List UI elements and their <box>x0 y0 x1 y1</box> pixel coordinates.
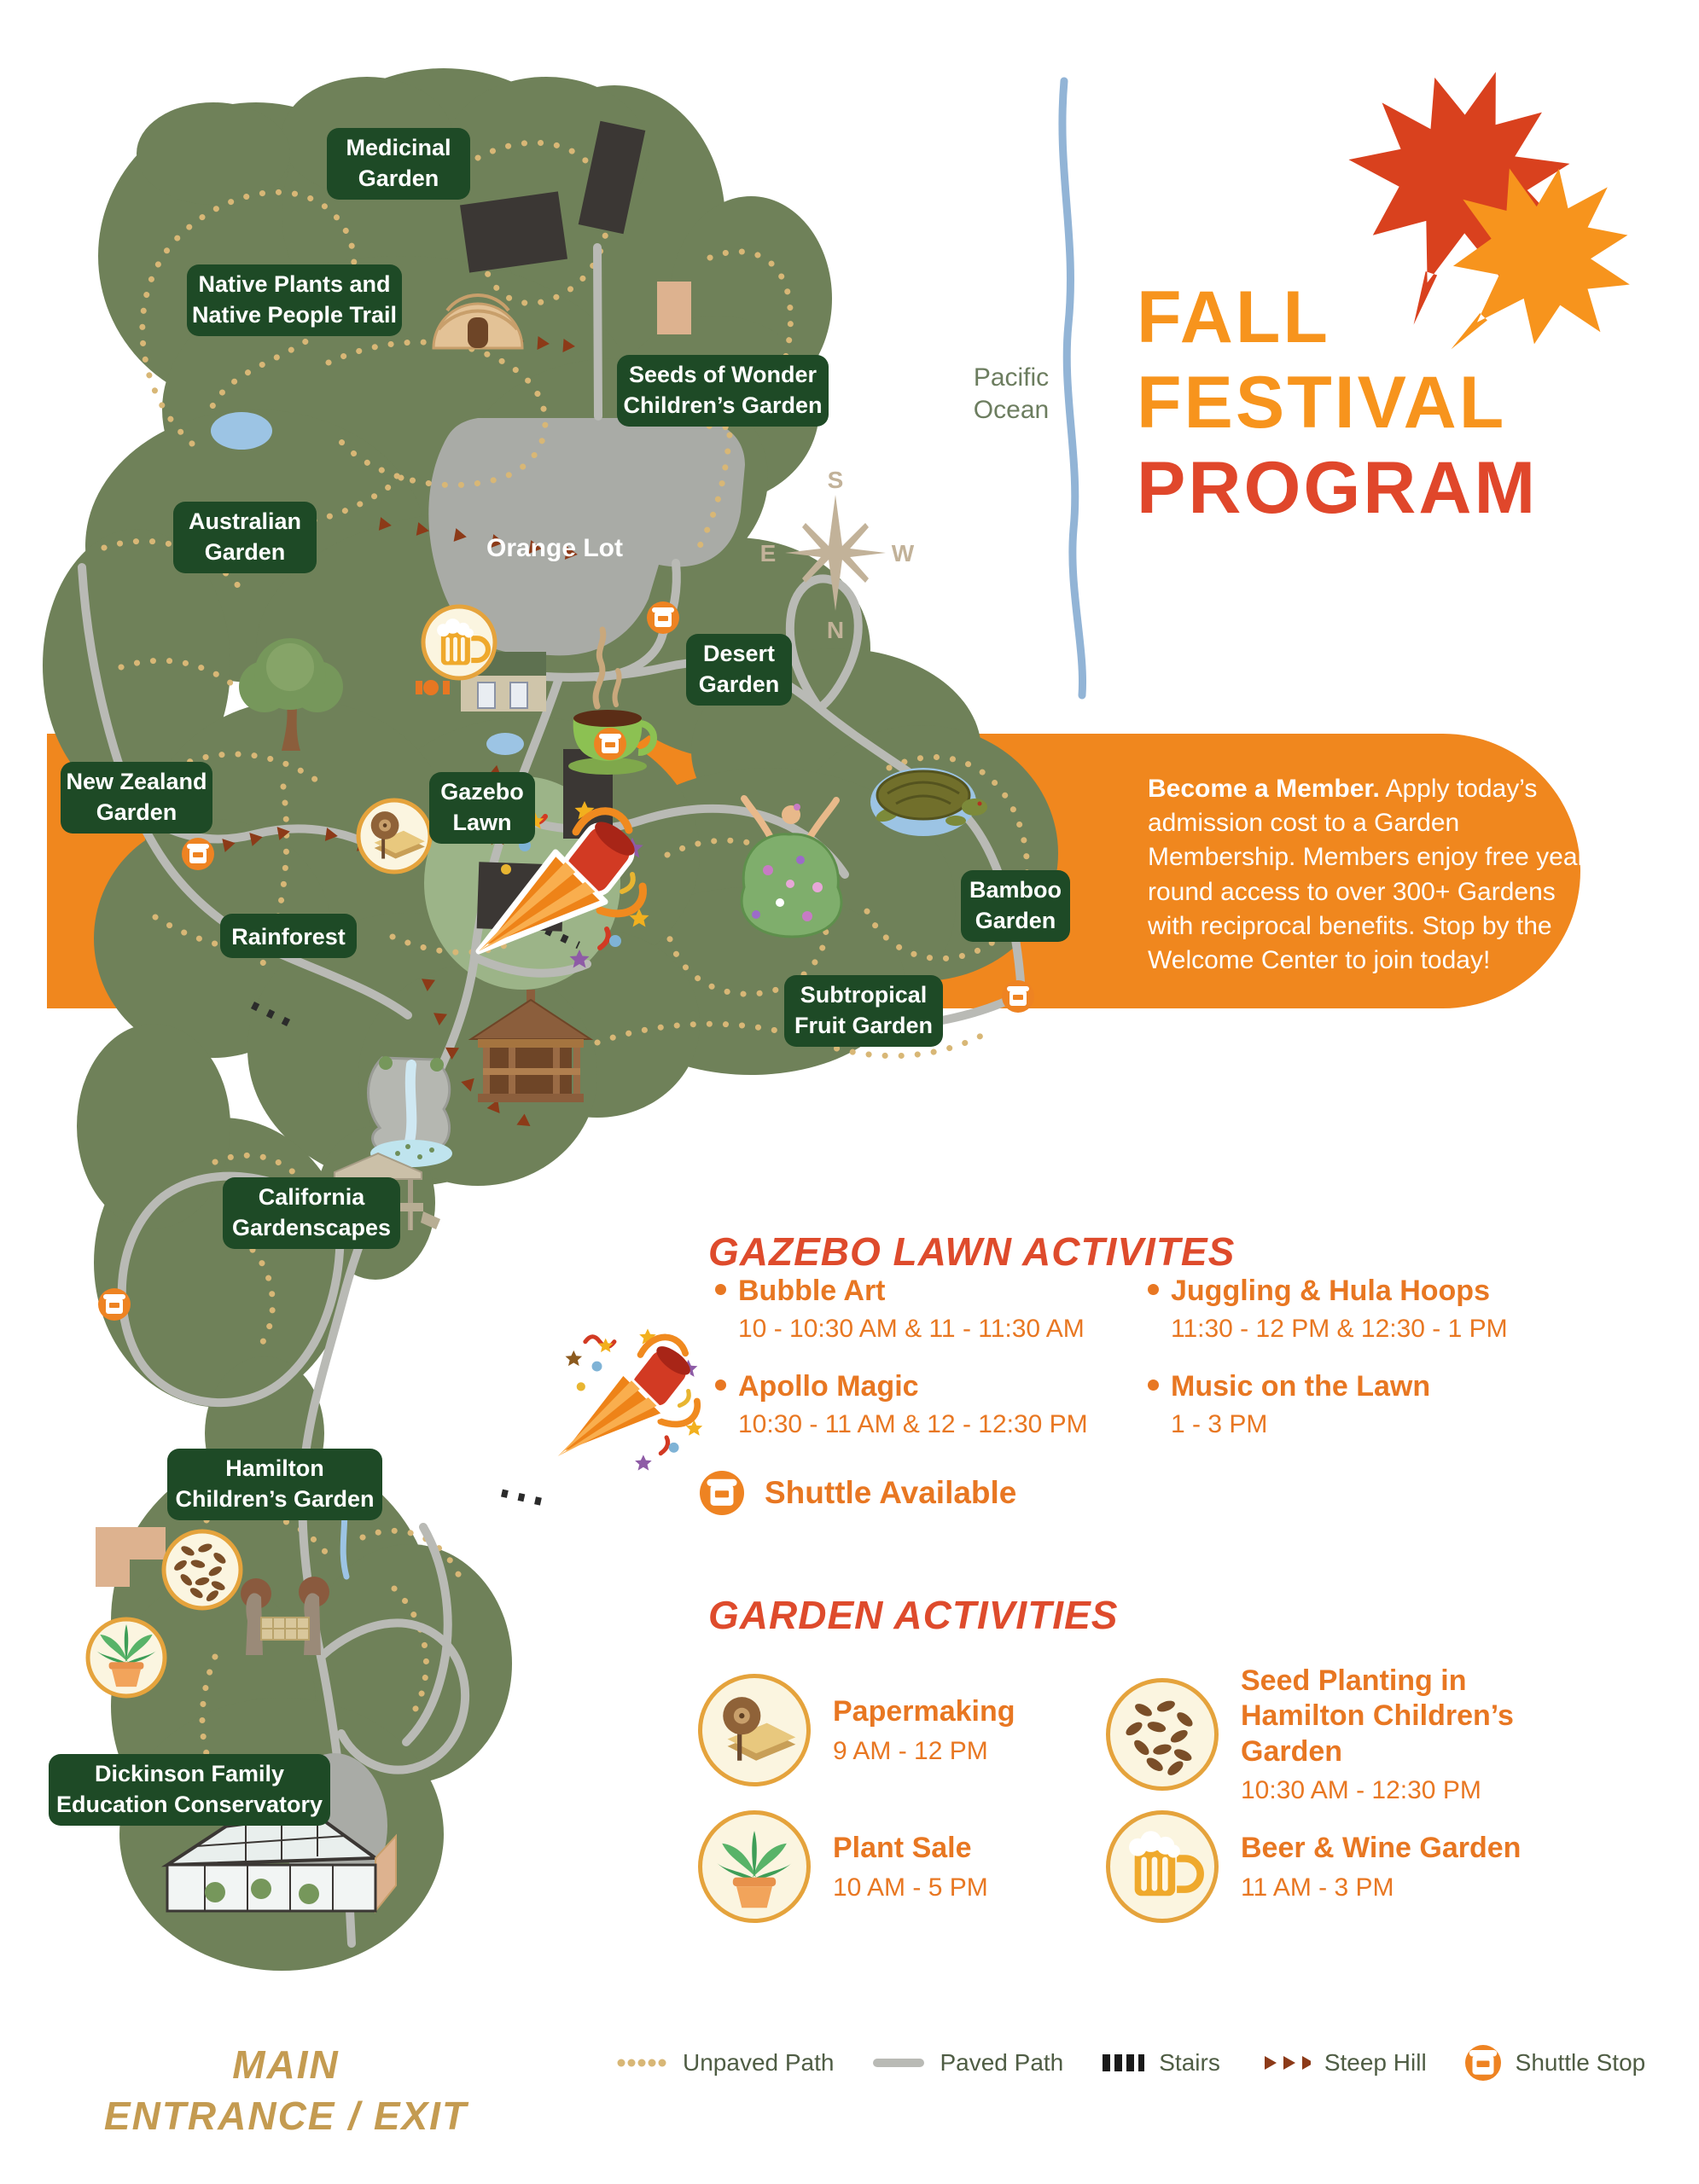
treehouse-illustration <box>335 1153 440 1230</box>
svg-text:Native Plants and: Native Plants and <box>198 271 390 297</box>
steep-hill-markers <box>222 334 579 1132</box>
legend-steep-hill: Steep Hill <box>1258 2049 1427 2077</box>
svg-text:Medicinal: Medicinal <box>346 135 451 160</box>
member-banner-text: Become a Member. Apply today’s admission… <box>1148 772 1591 978</box>
legend-shuttle-stop: Shuttle Stop <box>1464 2044 1646 2082</box>
map-label-hamilton-childrens-garden: HamiltonChildren’s Garden <box>167 1449 382 1520</box>
map-label-medicinal-garden: MedicinalGarden <box>327 128 470 200</box>
activity-seed-planting: Seed Planting in Hamilton Children’s Gar… <box>1106 1664 1584 1805</box>
svg-text:Fruit Garden: Fruit Garden <box>794 1013 933 1038</box>
garden-activities-heading: GARDEN ACTIVITIES <box>708 1592 1118 1638</box>
compass-south: S <box>828 467 844 493</box>
svg-text:Seeds of Wonder: Seeds of Wonder <box>629 362 817 387</box>
shuttle-available-note: Shuttle Available <box>700 1471 1016 1515</box>
beer-mug-icon <box>1106 1810 1219 1923</box>
stairs-icon <box>1101 2053 1145 2072</box>
legend-unpaved-path: Unpaved Path <box>616 2049 834 2077</box>
shuttle-stop-icon <box>1464 2044 1502 2082</box>
potted-plant-icon <box>96 1624 156 1687</box>
svg-text:Pacific: Pacific <box>974 363 1049 392</box>
activity-plant-sale: Plant Sale 10 AM - 5 PM <box>698 1810 1176 1923</box>
steep-hill-icon <box>1258 2055 1311 2071</box>
orange-lot-area <box>428 418 745 655</box>
legend-stairs: Stairs <box>1101 2049 1220 2077</box>
compass-west: W <box>892 540 915 566</box>
pacific-ocean-line <box>1062 81 1083 695</box>
svg-text:Gardenscapes: Gardenscapes <box>232 1215 391 1240</box>
pacific-ocean-label: Pacific Ocean <box>974 363 1049 424</box>
compass-east: E <box>760 540 777 566</box>
bullet-icon <box>715 1380 726 1391</box>
svg-text:Australian: Australian <box>189 508 301 534</box>
activity-juggling-hula-hoops: Juggling & Hula Hoops 11:30 - 12 PM & 12… <box>1148 1275 1549 1344</box>
svg-text:Garden: Garden <box>699 671 780 697</box>
hut-illustration <box>433 295 522 348</box>
visitor-center-illustration <box>416 652 546 712</box>
potted-plant-icon <box>698 1810 811 1923</box>
title-fall: FALL <box>1137 275 1538 360</box>
activity-beer-wine-garden: Beer & Wine Garden 11 AM - 3 PM <box>1106 1810 1584 1923</box>
member-banner-body: Apply today’s admission cost to a Garden… <box>1148 775 1586 974</box>
svg-text:California: California <box>259 1184 366 1210</box>
compass-rose: S E W N <box>760 467 915 643</box>
map-label-seeds-of-wonder: Seeds of WonderChildren’s Garden <box>617 355 829 427</box>
bullet-icon <box>715 1284 726 1295</box>
svg-text:Education Conservatory: Education Conservatory <box>56 1792 323 1817</box>
map-label-desert-garden: DesertGarden <box>686 634 792 706</box>
seeds-icon <box>1106 1678 1219 1791</box>
svg-text:Dickinson Family: Dickinson Family <box>95 1761 284 1786</box>
map-label-native-plants-trail: Native Plants andNative People Trail <box>187 264 402 336</box>
svg-text:Hamilton: Hamilton <box>225 1455 324 1481</box>
title-program: PROGRAM <box>1137 445 1538 531</box>
activity-papermaking: Papermaking 9 AM - 12 PM <box>698 1674 1176 1786</box>
stairs-markers <box>253 923 579 1503</box>
svg-text:Native People Trail: Native People Trail <box>192 302 397 328</box>
main-entrance-label: MAIN ENTRANCE / EXIT <box>85 2039 486 2141</box>
party-popper-icon <box>558 1328 703 1470</box>
shuttle-stop-icon <box>700 1471 744 1515</box>
activity-music-on-the-lawn: Music on the Lawn 1 - 3 PM <box>1148 1370 1549 1439</box>
svg-text:Desert: Desert <box>703 641 775 666</box>
svg-text:Garden: Garden <box>205 539 286 565</box>
bullet-icon <box>1148 1284 1159 1295</box>
fall-festival-program-poster: { "title": {"lines": ["FALL", "FESTIVAL"… <box>0 0 1699 2184</box>
beer-mug-icon <box>437 619 488 665</box>
svg-text:Children’s Garden: Children’s Garden <box>623 392 822 418</box>
map-label-australian-garden: AustralianGarden <box>173 502 317 573</box>
compass-north: N <box>827 617 844 643</box>
member-banner-lead: Become a Member. <box>1148 775 1380 803</box>
seeds-icon <box>172 1542 228 1604</box>
legend-paved-path: Paved Path <box>871 2049 1063 2077</box>
paper-roll-icon <box>698 1674 811 1786</box>
waterfall-illustration <box>369 1056 453 1167</box>
orange-lot-label: Orange Lot <box>486 534 623 562</box>
svg-text:Garden: Garden <box>358 166 439 191</box>
title-festival: FESTIVAL <box>1137 360 1538 445</box>
gazebo-activities-heading: GAZEBO LAWN ACTIVITES <box>708 1228 1235 1275</box>
hamilton-treehouse-illustration <box>241 1577 329 1655</box>
svg-text:Children’s Garden: Children’s Garden <box>175 1486 374 1512</box>
bullet-icon <box>1148 1380 1159 1391</box>
page-title: FALL FESTIVAL PROGRAM <box>1137 275 1538 531</box>
svg-text:Ocean: Ocean <box>974 396 1049 424</box>
activity-bubble-art: Bubble Art 10 - 10:30 AM & 11 - 11:30 AM <box>715 1275 1116 1344</box>
unpaved-path-icon <box>616 2058 669 2068</box>
map-label-dickinson-conservatory: Dickinson FamilyEducation Conservatory <box>49 1754 330 1826</box>
conservatory-illustration <box>167 1753 396 1911</box>
activity-apollo-magic: Apollo Magic 10:30 - 11 AM & 12 - 12:30 … <box>715 1370 1116 1439</box>
paved-path-icon <box>871 2058 926 2068</box>
map-label-california-gardenscapes: CaliforniaGardenscapes <box>223 1177 400 1249</box>
map-legend: Unpaved Path Paved Path Stairs Steep Hil… <box>616 2044 1683 2082</box>
